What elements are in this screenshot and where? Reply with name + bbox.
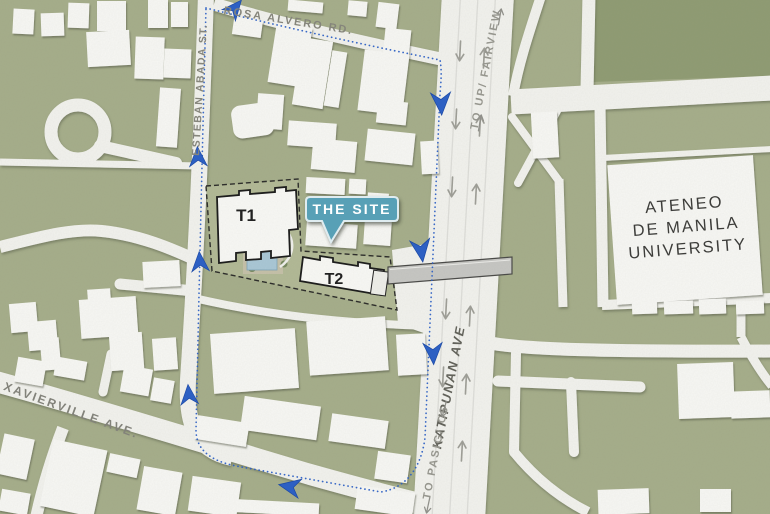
map-canvas: T1 T2 ROSA ALVERO RD. ESTEBAN ABADA ST. … bbox=[0, 0, 770, 514]
callout-label: THE SITE bbox=[312, 201, 391, 217]
site-location-map: T1 T2 ROSA ALVERO RD. ESTEBAN ABADA ST. … bbox=[0, 0, 770, 514]
